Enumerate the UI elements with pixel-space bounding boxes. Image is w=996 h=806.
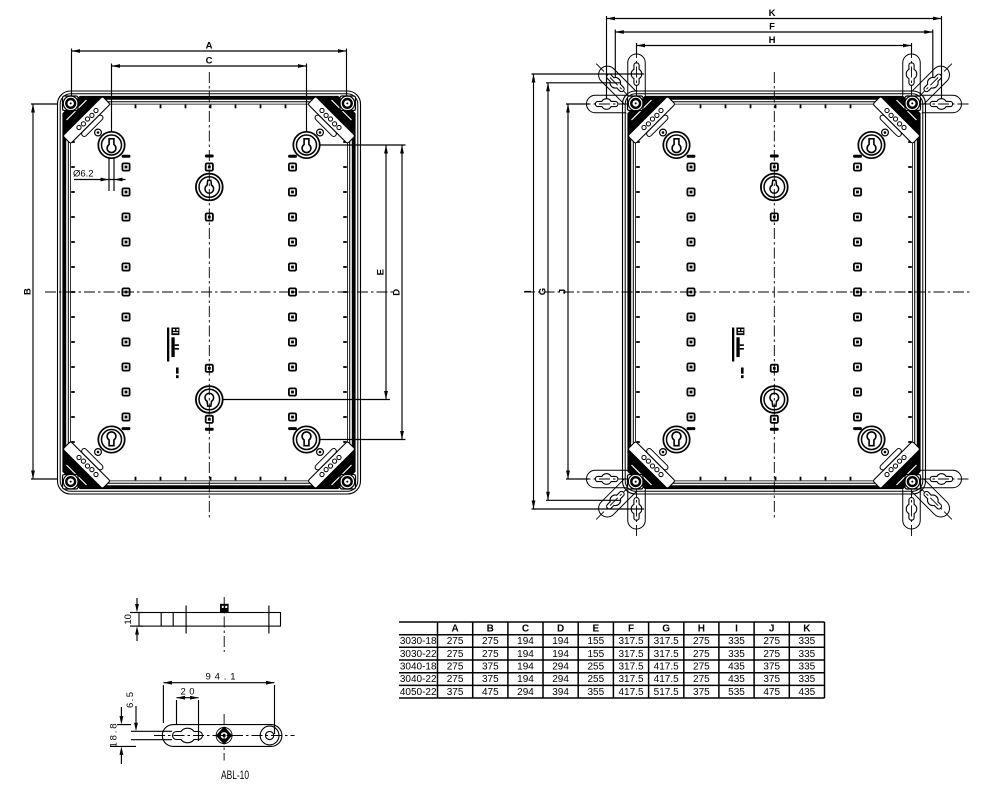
svg-text:435: 435 xyxy=(728,674,745,685)
svg-text:194: 194 xyxy=(552,636,569,647)
svg-text:4050-22: 4050-22 xyxy=(400,687,437,698)
svg-text:275: 275 xyxy=(763,649,780,660)
svg-text:A: A xyxy=(451,624,458,635)
svg-text:155: 155 xyxy=(587,636,604,647)
svg-text:375: 375 xyxy=(482,674,499,685)
svg-text:6.5: 6.5 xyxy=(125,692,136,708)
svg-text:417.5: 417.5 xyxy=(654,674,679,685)
svg-text:294: 294 xyxy=(517,687,534,698)
svg-text:375: 375 xyxy=(763,662,780,673)
svg-text:317.5: 317.5 xyxy=(654,649,679,660)
svg-text:A: A xyxy=(206,41,213,52)
svg-text:3030-22: 3030-22 xyxy=(400,649,437,660)
svg-text:3040-18: 3040-18 xyxy=(400,662,437,673)
svg-text:275: 275 xyxy=(447,662,464,673)
svg-text:10: 10 xyxy=(123,614,134,625)
svg-text:E: E xyxy=(592,624,599,635)
svg-text:317.5: 317.5 xyxy=(618,674,643,685)
svg-text:18.8: 18.8 xyxy=(109,724,120,748)
svg-text:375: 375 xyxy=(482,662,499,673)
svg-text:E: E xyxy=(376,269,387,275)
svg-text:335: 335 xyxy=(799,674,816,685)
svg-text:275: 275 xyxy=(693,662,710,673)
svg-text:I: I xyxy=(735,624,738,635)
svg-text:ABL-10: ABL-10 xyxy=(221,770,249,782)
svg-text:335: 335 xyxy=(799,662,816,673)
svg-text:3040-22: 3040-22 xyxy=(400,674,437,685)
svg-text:C: C xyxy=(522,624,529,635)
svg-text:475: 475 xyxy=(763,687,780,698)
svg-text:C: C xyxy=(206,56,213,67)
svg-text:435: 435 xyxy=(728,662,745,673)
svg-text:I: I xyxy=(523,290,534,293)
svg-text:K: K xyxy=(769,8,776,19)
svg-text:B: B xyxy=(23,288,34,295)
svg-text:J: J xyxy=(558,289,569,294)
svg-text:317.5: 317.5 xyxy=(654,636,679,647)
svg-text:394: 394 xyxy=(552,687,569,698)
svg-text:H: H xyxy=(769,35,776,46)
svg-text:155: 155 xyxy=(587,649,604,660)
svg-text:194: 194 xyxy=(517,662,534,673)
svg-text:275: 275 xyxy=(763,636,780,647)
svg-text:H: H xyxy=(698,624,705,635)
svg-text:317.5: 317.5 xyxy=(618,649,643,660)
svg-text:294: 294 xyxy=(552,662,569,673)
svg-text:275: 275 xyxy=(482,636,499,647)
svg-text:F: F xyxy=(628,624,634,635)
svg-text:435: 435 xyxy=(799,687,816,698)
svg-text:Ø6.2: Ø6.2 xyxy=(73,169,94,180)
svg-text:275: 275 xyxy=(693,636,710,647)
svg-text:535: 535 xyxy=(728,687,745,698)
svg-text:D: D xyxy=(557,624,564,635)
svg-text:317.5: 317.5 xyxy=(618,636,643,647)
svg-text:417.5: 417.5 xyxy=(654,662,679,673)
svg-text:3030-18: 3030-18 xyxy=(400,636,437,647)
svg-text:317.5: 317.5 xyxy=(618,662,643,673)
svg-text:G: G xyxy=(662,624,670,635)
svg-text:355: 355 xyxy=(587,687,604,698)
svg-text:K: K xyxy=(803,624,811,635)
svg-text:D: D xyxy=(392,289,403,296)
svg-text:F: F xyxy=(769,22,775,33)
svg-text:375: 375 xyxy=(447,687,464,698)
svg-text:335: 335 xyxy=(799,636,816,647)
svg-text:375: 375 xyxy=(763,674,780,685)
svg-text:475: 475 xyxy=(482,687,499,698)
svg-text:275: 275 xyxy=(693,674,710,685)
svg-text:275: 275 xyxy=(447,649,464,660)
svg-text:255: 255 xyxy=(587,662,604,673)
svg-text:294: 294 xyxy=(552,674,569,685)
svg-text:335: 335 xyxy=(799,649,816,660)
svg-text:275: 275 xyxy=(447,674,464,685)
svg-text:417.5: 417.5 xyxy=(618,687,643,698)
svg-text:J: J xyxy=(769,624,775,635)
svg-text:375: 375 xyxy=(693,687,710,698)
svg-text:275: 275 xyxy=(693,649,710,660)
svg-text:275: 275 xyxy=(482,649,499,660)
svg-text:255: 255 xyxy=(587,674,604,685)
svg-text:335: 335 xyxy=(728,649,745,660)
svg-text:335: 335 xyxy=(728,636,745,647)
svg-text:194: 194 xyxy=(517,674,534,685)
svg-text:194: 194 xyxy=(552,649,569,660)
svg-text:275: 275 xyxy=(447,636,464,647)
svg-text:B: B xyxy=(487,624,494,635)
svg-text:194: 194 xyxy=(517,649,534,660)
svg-text:517.5: 517.5 xyxy=(654,687,679,698)
svg-text:194: 194 xyxy=(517,636,534,647)
svg-text:G: G xyxy=(538,288,549,295)
